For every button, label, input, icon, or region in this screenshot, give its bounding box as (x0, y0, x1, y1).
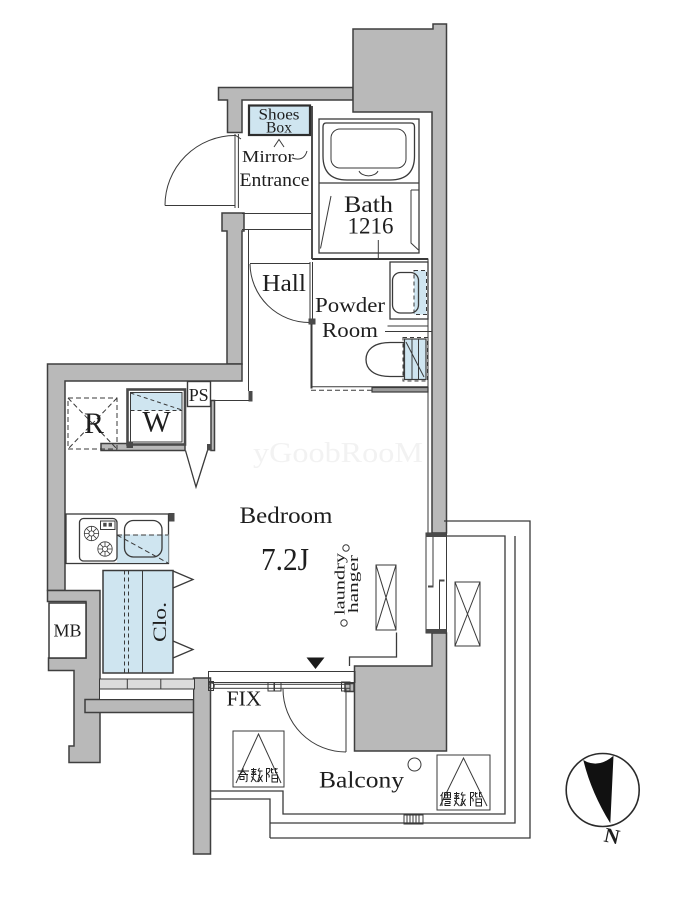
svg-text:MB: MB (54, 621, 82, 641)
svg-text:Powder: Powder (315, 293, 385, 317)
svg-text:FIX: FIX (227, 687, 262, 711)
svg-text:PS: PS (189, 385, 209, 405)
svg-text:W: W (142, 406, 171, 439)
svg-text:Box: Box (266, 120, 292, 137)
svg-text:Bedroom: Bedroom (240, 503, 333, 528)
svg-text:R: R (84, 407, 104, 440)
svg-text:Hall: Hall (262, 271, 306, 297)
svg-text:Clo.: Clo. (150, 602, 171, 642)
svg-text:1216: 1216 (348, 214, 394, 239)
svg-text:Balcony: Balcony (319, 768, 404, 794)
svg-text:yGoobRooM: yGoobRooM (253, 438, 423, 469)
svg-text:Mirror: Mirror (242, 147, 294, 166)
svg-text:7.2J: 7.2J (261, 541, 309, 577)
svg-text:Room: Room (322, 318, 378, 342)
svg-text:Entrance: Entrance (240, 171, 310, 191)
svg-text:hanger: hanger (346, 555, 362, 613)
